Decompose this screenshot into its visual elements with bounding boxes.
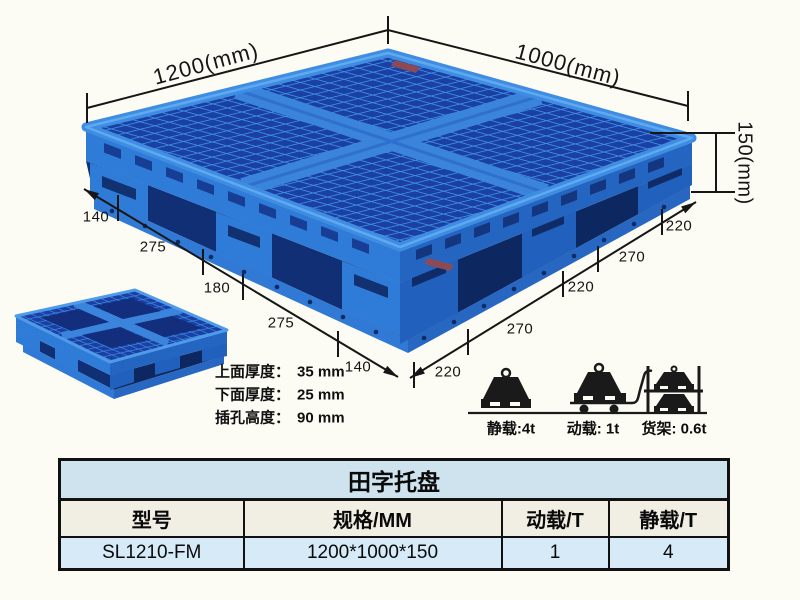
note-top-thickness: 上面厚度：35 mm <box>215 361 345 382</box>
note-fork-height: 插孔高度：90 mm <box>215 407 345 428</box>
spec-table-data-row: SL1210-FM 1200*1000*150 1 4 <box>60 537 729 570</box>
product-spec-sheet: 1200(mm) 1000(mm) 150(mm) 140 275 180 27… <box>0 0 800 600</box>
dim-seg-right-5: 220 <box>666 218 693 235</box>
dim-seg-right-1: 220 <box>435 364 462 381</box>
note-bottom-thickness: 下面厚度：25 mm <box>215 384 345 405</box>
col-header-size: 规格/MM <box>244 500 502 538</box>
note-value: 90 mm <box>297 410 345 427</box>
small-pallet-illustration <box>16 290 227 399</box>
col-header-static: 静载/T <box>609 500 729 538</box>
capacity-icons <box>468 364 707 414</box>
spec-table-header-row: 型号 规格/MM 动载/T 静载/T <box>60 500 729 538</box>
static-load-icon <box>481 369 531 408</box>
rack-load-icon <box>644 366 703 413</box>
dim-seg-left-1: 140 <box>83 209 110 226</box>
col-header-model: 型号 <box>60 500 244 538</box>
note-label: 插孔高度： <box>215 410 290 427</box>
dynamic-load-icon <box>570 364 652 414</box>
dim-label-height: 150(mm) <box>733 121 756 205</box>
dynamic-load-label: 动载: 1t <box>567 418 620 439</box>
cell-dynamic-load: 1 <box>502 537 609 570</box>
cell-model: SL1210-FM <box>60 537 244 570</box>
dim-seg-right-3: 220 <box>568 279 595 296</box>
static-load-label: 静载:4t <box>487 418 535 439</box>
note-label: 下面厚度： <box>215 387 290 404</box>
note-label: 上面厚度： <box>215 364 290 381</box>
note-value: 35 mm <box>297 364 345 381</box>
cell-size: 1200*1000*150 <box>244 537 502 570</box>
dim-seg-right-2: 270 <box>507 321 534 338</box>
spec-table: 田字托盘 型号 规格/MM 动载/T 静载/T SL1210-FM 1200*1… <box>58 458 730 571</box>
dim-seg-left-5: 140 <box>345 359 372 376</box>
col-header-dynamic: 动载/T <box>502 500 609 538</box>
dim-seg-right-4: 270 <box>619 249 646 266</box>
spec-table-title-row: 田字托盘 <box>60 460 729 500</box>
rack-load-label: 货架: 0.6t <box>641 418 706 439</box>
dim-seg-left-2: 275 <box>140 239 167 256</box>
spec-table-title: 田字托盘 <box>60 460 729 500</box>
dim-seg-left-3: 180 <box>204 280 231 297</box>
note-value: 25 mm <box>297 387 345 404</box>
dim-seg-left-4: 275 <box>268 315 295 332</box>
cell-static-load: 4 <box>609 537 729 570</box>
